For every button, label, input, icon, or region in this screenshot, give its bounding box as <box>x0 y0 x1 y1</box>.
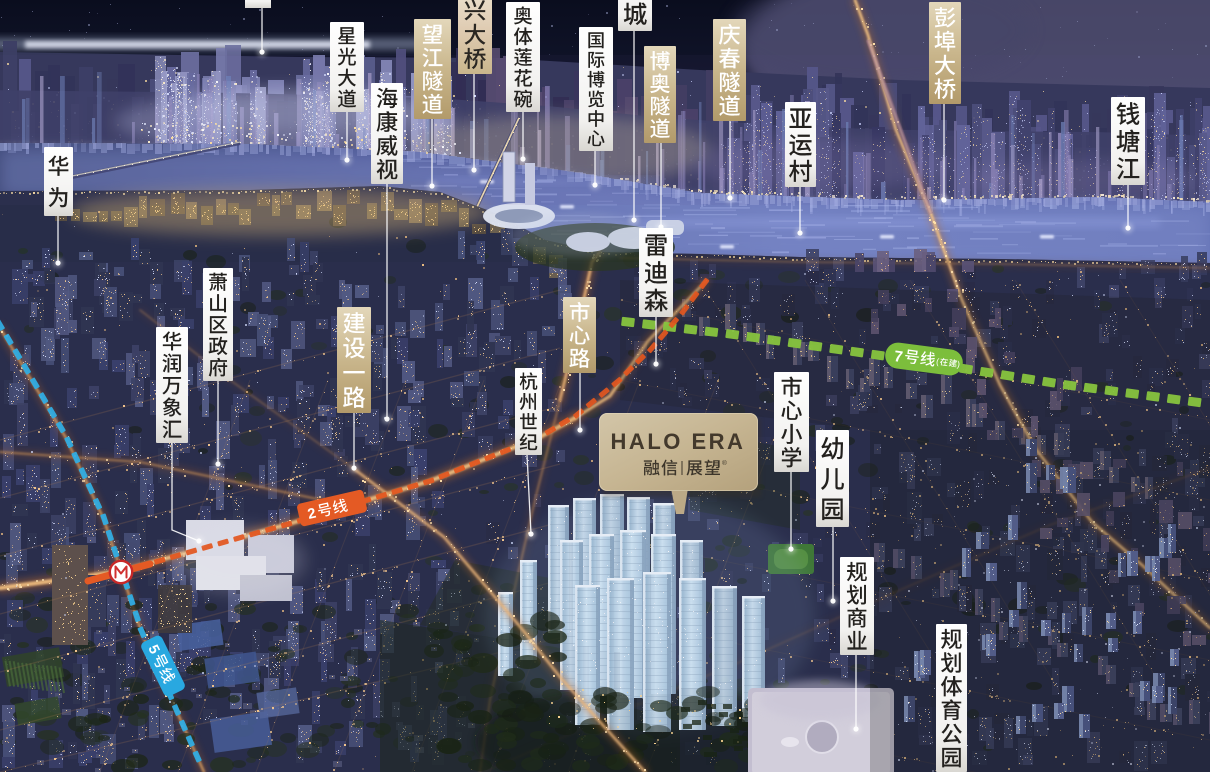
svg-text:HALO ERA: HALO ERA <box>611 429 746 454</box>
svg-text:®: ® <box>722 459 727 467</box>
